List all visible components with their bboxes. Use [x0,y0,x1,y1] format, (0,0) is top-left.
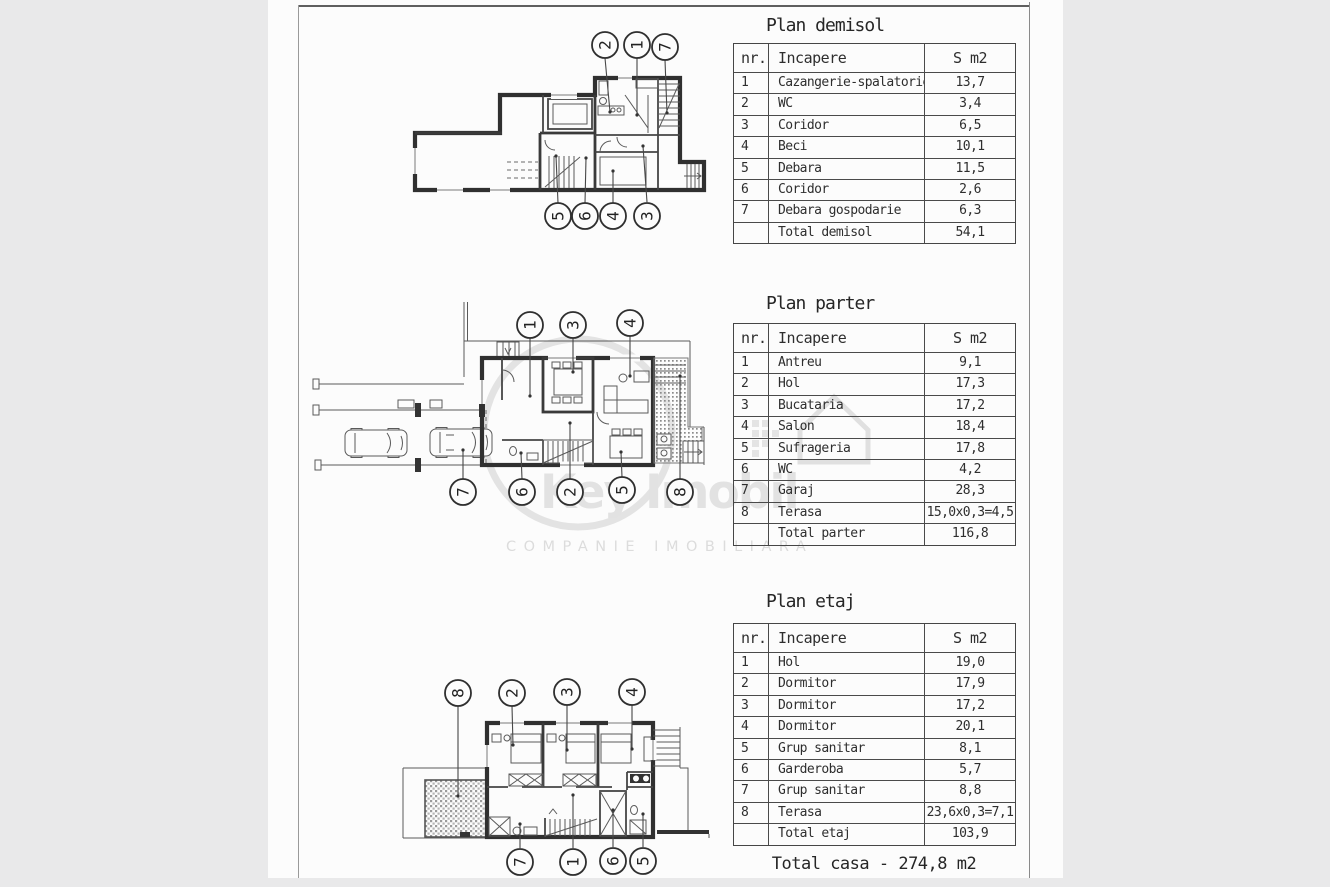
room-marker: 5 [630,848,656,874]
table-cell: 1 [734,353,769,373]
table-cell: Garderoba [769,760,925,780]
marker-label: 5 [549,211,568,221]
room-marker: 5 [609,477,635,503]
column-header: Incapere [769,44,925,72]
marker-label: 4 [621,318,640,328]
room-marker: 7 [507,849,533,875]
table-cell: 9,1 [925,353,1015,373]
table-cell: 13,7 [925,73,1015,93]
table-cell: Cazangerie-spalatorie [769,73,925,93]
table-row: 5Debara11,5 [734,158,1015,179]
total-house-area: Total casa - 274,8 m2 [733,854,1015,874]
table-cell [734,223,769,243]
floor-plan-etaj: 8 2 3 4 7 1 6 5 [310,675,730,880]
table-cell: 3,4 [925,94,1015,114]
room-marker: 4 [617,310,643,336]
marker-label: 4 [623,687,642,697]
table-cell: 2 [734,374,769,394]
table-cell: 7 [734,481,769,501]
table-cell: 17,2 [925,396,1015,416]
table-cell: 11,5 [925,159,1015,179]
column-header: Incapere [769,324,925,352]
column-header: S m2 [925,324,1015,352]
table-row: 8Terasa23,6x0,3=7,1 [734,802,1015,823]
marker-label: 7 [511,857,530,867]
table-header-row: nr.IncapereS m2 [734,44,1015,72]
table-cell: 54,1 [925,223,1015,243]
table-cell: 4,2 [925,460,1015,480]
table-cell: 4 [734,417,769,437]
room-marker: 6 [509,479,535,505]
column-header: S m2 [925,624,1015,652]
column-header: S m2 [925,44,1015,72]
table-row: 3Bucataria17,2 [734,395,1015,416]
room-marker: 1 [624,32,650,58]
column-header: nr. [734,324,769,352]
etaj-stairs [545,809,597,836]
table-row: 7Grup sanitar8,8 [734,780,1015,801]
table-cell: 19,0 [925,653,1015,673]
marker-label: 6 [576,211,595,221]
table-cell: 23,6x0,3=7,1 [925,803,1015,823]
marker-label: 8 [449,688,468,698]
table-row: 7Garaj28,3 [734,480,1015,501]
dining-table [610,429,642,458]
table-cell: Coridor [769,116,925,136]
table-row: 2Hol17,3 [734,373,1015,394]
room-marker: 2 [592,32,618,58]
room-marker: 2 [557,479,583,505]
interior-stairs [543,440,593,463]
table-cell: Beci [769,137,925,157]
table-row: 6Coridor2,6 [734,179,1015,200]
marker-label: 2 [596,40,615,50]
table-header-row: nr.IncapereS m2 [734,324,1015,352]
room-marker: 2 [499,680,525,706]
marker-label: 1 [564,857,583,867]
table-cell: Total demisol [769,223,925,243]
room-marker: 6 [572,203,598,229]
table-row: Total parter116,8 [734,523,1015,544]
floor-plan-parter: 1 3 4 7 6 2 5 8 [305,295,725,560]
marker-label: 7 [454,487,473,497]
table-cell: 3 [734,396,769,416]
marker-label: 3 [638,211,657,221]
table-cell: Terasa [769,803,925,823]
table-cell: Dormitor [769,696,925,716]
table-cell: 28,3 [925,481,1015,501]
section-title-etaj: Plan etaj [766,591,855,612]
table-cell: 116,8 [925,524,1015,544]
table-cell: 6 [734,180,769,200]
table-cell: 20,1 [925,717,1015,737]
room-marker: 4 [600,203,626,229]
room-marker: 7 [450,479,476,505]
table-cell: Terasa [769,503,925,523]
ground-line [657,830,709,838]
table-cell: 1 [734,73,769,93]
marker-label: 3 [564,320,583,330]
table-cell: 7 [734,201,769,221]
bathroom-right [630,774,650,834]
table-row: 4Beci10,1 [734,136,1015,157]
room-marker: 1 [560,849,586,875]
table-cell: 6,3 [925,201,1015,221]
table-cell: 2,6 [925,180,1015,200]
room-marker: 8 [445,680,471,706]
table-cell: 5 [734,439,769,459]
table-cell: Total parter [769,524,925,544]
exterior-stair [683,441,704,463]
section-title-demisol: Plan demisol [766,15,884,36]
table-row: 8Terasa15,0x0,3=4,5 [734,502,1015,523]
area-table-parter: nr.IncapereS m21Antreu9,12Hol17,33Bucata… [733,323,1016,546]
table-row: Total etaj103,9 [734,823,1015,844]
marker-label: 2 [503,688,522,698]
table-cell: 4 [734,137,769,157]
table-header-row: nr.IncapereS m2 [734,624,1015,652]
table-row: 1Antreu9,1 [734,352,1015,373]
table-cell: Debara [769,159,925,179]
table-cell: 15,0x0,3=4,5 [925,503,1015,523]
area-table-demisol: nr.IncapereS m21Cazangerie-spalatorie13,… [733,43,1016,244]
table-cell: 1 [734,653,769,673]
demisol-stairs [507,84,701,188]
marker-label: 1 [628,40,647,50]
room-marker: 3 [554,679,580,705]
table-row: 2Dormitor17,9 [734,673,1015,694]
table-cell: 6 [734,460,769,480]
room-marker: 8 [667,479,693,505]
table-cell: Coridor [769,180,925,200]
table-row: 4Dormitor20,1 [734,716,1015,737]
table-cell: Grup sanitar [769,739,925,759]
table-cell: Dormitor [769,717,925,737]
table-cell: WC [769,460,925,480]
table-cell: 4 [734,717,769,737]
salon-sofa [604,371,649,413]
fence-lines [313,379,486,472]
exterior-stair-etaj [653,727,688,830]
table-cell: 6,5 [925,116,1015,136]
table-cell: 5,7 [925,760,1015,780]
table-row: 5Grup sanitar8,1 [734,738,1015,759]
bathroom-left [489,817,537,836]
table-cell: 8,1 [925,739,1015,759]
table-cell: Hol [769,653,925,673]
terrace [403,768,487,838]
table-cell: 103,9 [925,824,1015,844]
table-cell: 17,3 [925,374,1015,394]
floor-plan-demisol: 2 1 7 5 6 4 3 [330,28,722,240]
column-header: nr. [734,624,769,652]
table-cell: Sufrageria [769,439,925,459]
table-cell: Debara gospodarie [769,201,925,221]
table-cell: 7 [734,781,769,801]
entrance-steps [497,342,519,358]
room-marker: 3 [560,312,586,338]
table-cell: Bucataria [769,396,925,416]
table-cell: Garaj [769,481,925,501]
table-row: 3Dormitor17,2 [734,695,1015,716]
table-cell: 8,8 [925,781,1015,801]
table-cell: 18,4 [925,417,1015,437]
table-cell: WC [769,94,925,114]
demisol-fixtures [545,79,658,152]
table-cell: Antreu [769,353,925,373]
table-cell: 3 [734,116,769,136]
car-icon [345,429,407,458]
area-table-etaj: nr.IncapereS m21Hol19,02Dormitor17,93Dor… [733,623,1016,846]
table-cell: 2 [734,674,769,694]
marker-label: 7 [656,42,675,52]
table-row: 6WC4,2 [734,459,1015,480]
table-cell: 3 [734,696,769,716]
table-cell: 8 [734,503,769,523]
table-cell: 17,2 [925,696,1015,716]
table-cell: Grup sanitar [769,781,925,801]
column-header: Incapere [769,624,925,652]
marker-label: 8 [671,487,690,497]
table-row: 4Salon18,4 [734,416,1015,437]
table-cell: Dormitor [769,674,925,694]
table-cell: 5 [734,739,769,759]
room-marker: 5 [545,203,571,229]
wardrobe [509,774,596,786]
scanned-floor-plan-document: { "page": { "total_line": "Total casa - … [0,0,1330,887]
marker-label: 3 [558,687,577,697]
table-cell [734,524,769,544]
room-marker: 3 [634,203,660,229]
table-row: 3Coridor6,5 [734,115,1015,136]
table-cell: 6 [734,760,769,780]
marker-label: 4 [604,211,623,221]
marker-label: 5 [613,485,632,495]
table-row: 1Cazangerie-spalatorie13,7 [734,72,1015,93]
marker-label: 2 [561,487,580,497]
table-row: 1Hol19,0 [734,652,1015,673]
table-cell: 5 [734,159,769,179]
marker-label: 1 [521,320,540,330]
table-cell: Salon [769,417,925,437]
table-row: 6Garderoba5,7 [734,759,1015,780]
table-cell [734,824,769,844]
room-marker: 7 [652,34,678,60]
table-cell: Hol [769,374,925,394]
table-row: 2WC3,4 [734,93,1015,114]
room-marker: 1 [517,312,543,338]
table-row: 5Sufrageria17,8 [734,438,1015,459]
table-row: Total demisol54,1 [734,222,1015,243]
kitchen-table [552,362,582,403]
table-cell: 2 [734,94,769,114]
table-cell: 17,9 [925,674,1015,694]
column-header: nr. [734,44,769,72]
table-cell: Total etaj [769,824,925,844]
marker-label: 5 [634,856,653,866]
room-marker: 6 [600,848,626,874]
marker-label: 6 [604,856,623,866]
table-row: 7Debara gospodarie6,3 [734,200,1015,221]
marker-label: 6 [513,487,532,497]
table-cell: 10,1 [925,137,1015,157]
table-cell: 17,8 [925,439,1015,459]
table-cell: 8 [734,803,769,823]
room-marker: 4 [619,679,645,705]
section-title-parter: Plan parter [766,293,874,314]
